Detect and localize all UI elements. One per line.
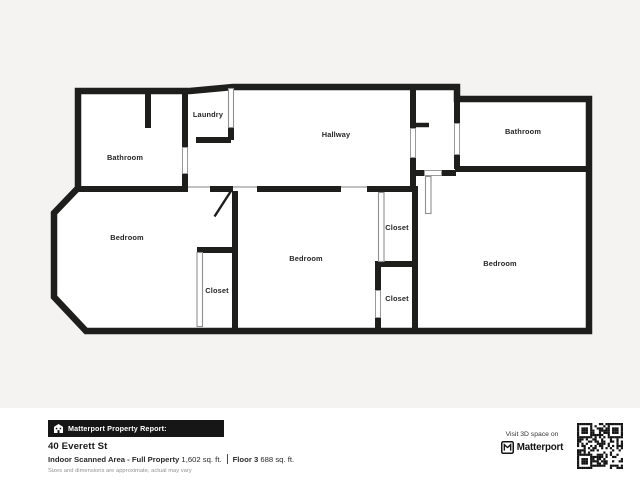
room-label-closet-lower: Closet bbox=[385, 294, 409, 303]
floorplan: Bathroom Laundry Hallway Bathroom Bedroo… bbox=[0, 0, 640, 410]
floor-label: Floor 3 bbox=[233, 455, 259, 464]
qr-code bbox=[577, 423, 623, 469]
floor-value: 688 sq. ft. bbox=[260, 455, 294, 464]
area-stats: Indoor Scanned Area - Full Property 1,60… bbox=[48, 454, 294, 464]
property-address: 40 Everett St bbox=[48, 441, 107, 452]
stats-divider bbox=[227, 454, 228, 464]
matterport-wordmark: Matterport bbox=[517, 442, 563, 453]
report-footer: Matterport Property Report: 40 Everett S… bbox=[0, 408, 640, 480]
scanned-area-label: Indoor Scanned Area - Full Property bbox=[48, 455, 179, 464]
visit-3d-label: Visit 3D space on bbox=[492, 431, 572, 438]
matterport-logo-icon bbox=[501, 441, 514, 454]
report-badge: Matterport Property Report: bbox=[48, 420, 224, 437]
room-label-bathroom-left: Bathroom bbox=[107, 153, 143, 162]
promo-block: Visit 3D space on Matterport bbox=[492, 431, 572, 454]
building-icon bbox=[54, 424, 63, 433]
room-label-bedroom-center: Bedroom bbox=[289, 254, 323, 263]
room-label-bedroom-left: Bedroom bbox=[110, 233, 144, 242]
floorplan-outline bbox=[54, 87, 589, 331]
laundry-door-leaf bbox=[229, 89, 234, 128]
bedroom-right-door-leaf bbox=[426, 177, 432, 214]
disclaimer-text: Sizes and dimensions are approximate, ac… bbox=[48, 468, 192, 474]
room-label-bedroom-right: Bedroom bbox=[483, 259, 517, 268]
room-label-closet-upper: Closet bbox=[385, 223, 409, 232]
room-label-bathroom-right: Bathroom bbox=[505, 127, 541, 136]
closet-upper-door-leaf bbox=[379, 193, 385, 262]
room-label-hallway: Hallway bbox=[322, 130, 351, 139]
matterport-logo: Matterport bbox=[492, 441, 572, 454]
badge-label: Matterport Property Report: bbox=[68, 424, 167, 433]
property-report-page: Bathroom Laundry Hallway Bathroom Bedroo… bbox=[0, 0, 640, 480]
room-label-laundry: Laundry bbox=[193, 110, 224, 119]
scanned-area-value: 1,602 sq. ft. bbox=[181, 455, 221, 464]
closet-left-door-leaf bbox=[197, 253, 203, 327]
room-label-closet-left: Closet bbox=[205, 286, 229, 295]
